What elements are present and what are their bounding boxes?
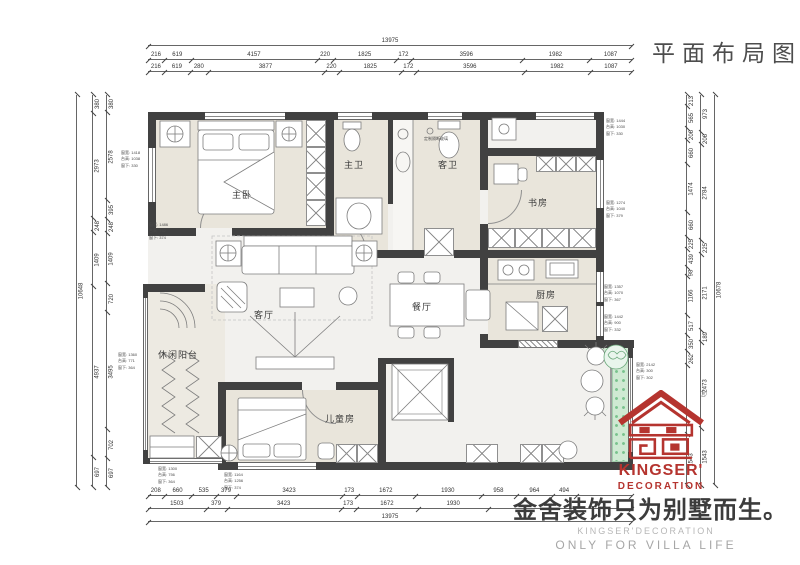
kids-cabinet — [336, 444, 378, 463]
balcony-cabinet-x — [196, 436, 222, 458]
x-cabinet-cell — [306, 200, 326, 227]
wall — [480, 340, 520, 348]
x-cabinet-cell — [542, 228, 569, 248]
kitchen-island — [542, 306, 568, 332]
glass-partition-note: 定制隔断玻璃 — [424, 136, 448, 142]
x-cabinet-cell — [556, 156, 576, 172]
floor-plan-page: { "title": "平面布局图", "rooms": { "master":… — [0, 0, 800, 565]
x-cabinet-cell — [542, 306, 568, 332]
x-cabinet-cell — [576, 156, 596, 172]
wall — [604, 340, 634, 348]
window — [536, 112, 594, 120]
x-cabinet-cell — [569, 228, 596, 248]
wall — [454, 250, 604, 258]
room-master — [156, 120, 326, 228]
wall — [143, 284, 148, 298]
wall — [488, 148, 596, 156]
window — [596, 272, 604, 302]
x-cabinet-cell — [424, 228, 454, 256]
window-note: 窗宽: 1300台高: 756窗下: 364 — [158, 466, 177, 485]
shower-column — [393, 120, 413, 250]
x-cabinet-cell — [466, 444, 498, 463]
dim-right-total: 10678 — [714, 95, 724, 485]
x-cabinet-cell — [542, 444, 564, 463]
brand-slogan: 金舍装饰只为别墅而生。 — [513, 490, 788, 525]
x-cabinet-cell — [488, 228, 515, 248]
room-label-balcony: 休闲阳台 — [158, 348, 198, 361]
window — [148, 148, 156, 202]
wall — [326, 250, 338, 258]
study-closet-top — [536, 156, 596, 172]
x-cabinet-cell — [336, 444, 357, 463]
x-cabinet-cell — [306, 147, 326, 174]
wall — [610, 348, 612, 462]
window — [596, 160, 604, 208]
window-note: 窗宽: 1274台高: 1040窗下: 379 — [606, 200, 625, 219]
page-title: 平面布局图 — [652, 34, 800, 68]
x-cabinet-cell — [196, 436, 222, 458]
dim-left-total: 10648 — [76, 95, 86, 487]
window-note: 窗宽: 1486台高: 762窗下: 374 — [149, 222, 168, 241]
room-label-study: 书房 — [528, 196, 548, 209]
dim-left-row2: 380257839524814097203495702697 — [106, 95, 116, 487]
dim-top-total: 13975 — [148, 36, 632, 46]
wall — [143, 284, 205, 292]
x-cabinet-cell — [520, 444, 542, 463]
wall — [366, 250, 424, 258]
wall — [218, 382, 302, 390]
window — [338, 112, 372, 120]
brand-slogan-en2: ONLY FOR VILLA LIFE — [526, 538, 766, 552]
sliding-door — [518, 340, 558, 348]
window-note: 窗宽: 1442台高: 900窗下: 332 — [604, 314, 623, 333]
logo-text: KINGSER' — [616, 462, 706, 480]
wall — [386, 358, 454, 364]
registered-mark: ® — [700, 389, 707, 399]
study-closet-bottom — [488, 228, 596, 248]
x-cabinet-cell — [515, 228, 542, 248]
wall — [232, 228, 332, 236]
room-label-master-bath: 主卫 — [344, 158, 364, 171]
wall — [628, 348, 633, 358]
window — [205, 112, 285, 120]
x-cabinet-cell — [536, 156, 556, 172]
kingser-logo-icon — [616, 390, 706, 462]
window-note: 窗宽: 1360台高: 771窗下: 364 — [118, 352, 137, 371]
window-note: 窗宽: 2142台高: 300窗下: 302 — [636, 362, 655, 381]
window-note: 窗宽: 1357台高: 1070窗下: 367 — [604, 284, 623, 303]
wardrobe-master — [306, 120, 326, 226]
dim-top-row2: 21661928038772201825172359619821087 — [148, 62, 632, 72]
window — [143, 298, 148, 450]
window-note: 窗宽: 1444台高: 1030窗下: 330 — [606, 118, 625, 137]
wall — [378, 358, 386, 470]
x-cabinet-cell — [357, 444, 378, 463]
room-label-guest-bath: 客卫 — [438, 158, 458, 171]
window — [238, 462, 316, 470]
brand-slogan-en: KINGSER'DECORATION — [526, 526, 766, 536]
wall — [480, 112, 488, 190]
window — [150, 458, 222, 464]
room-label-dining: 餐厅 — [412, 300, 432, 313]
dim-left-row1: 380297324814094937697 — [92, 95, 102, 487]
hall-cabinet-2 — [520, 444, 564, 463]
wall — [480, 258, 488, 302]
column-hatched — [424, 228, 454, 256]
hall-cabinet-1 — [466, 444, 498, 463]
window — [428, 112, 462, 120]
x-cabinet-cell — [306, 120, 326, 147]
room-label-living: 客厅 — [254, 308, 274, 321]
wall — [448, 358, 454, 422]
wall — [388, 112, 393, 204]
wall — [556, 340, 604, 348]
wall — [336, 382, 378, 390]
dim-top-row1: 21661941572201825172359619821087 — [148, 50, 632, 60]
window-note: 窗宽: 1418台高: 1038窗下: 330 — [121, 150, 140, 169]
room-label-kitchen: 厨房 — [536, 288, 556, 301]
x-cabinet-cell — [306, 173, 326, 200]
wall — [326, 112, 334, 258]
room-label-master: 主卧 — [232, 188, 252, 201]
room-label-kids: 儿童房 — [325, 412, 355, 425]
window — [596, 306, 604, 336]
